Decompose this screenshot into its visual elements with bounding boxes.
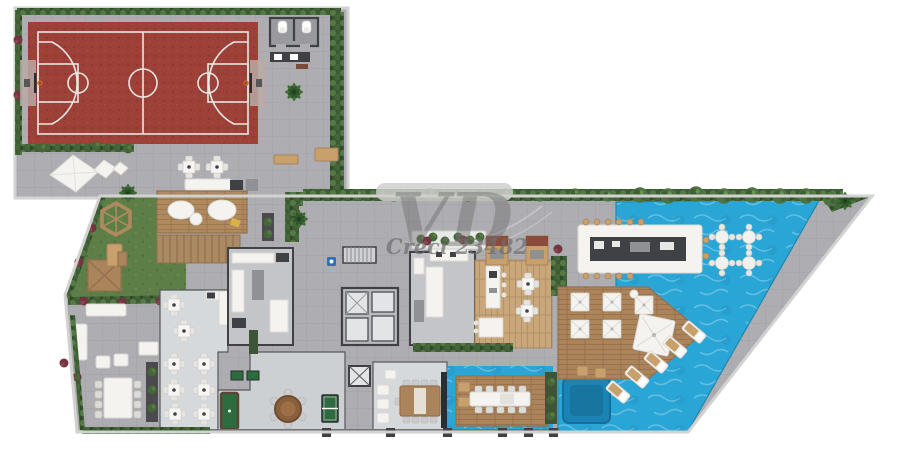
hedge-strip [413,343,513,352]
hedge-top-strip [17,8,341,15]
watermark: VD Creci 23482 [376,178,528,264]
bean-bag [208,200,236,220]
toilet-icon [278,21,287,33]
island-deck [447,366,557,432]
flower-bush [14,36,23,45]
deck-lounger [458,382,470,392]
armchair [377,413,389,423]
sports-terrace-block [14,8,349,198]
service-elevator [349,366,370,386]
hedge-right-strip [330,12,344,194]
kitchen-island [252,270,264,300]
appliance [232,318,246,328]
floorplan-svg: VD Creci 23482 [0,0,900,450]
floorplan-render: VD Creci 23482 [0,0,900,450]
bush [38,144,47,153]
side-table [630,290,638,298]
kitchen-counter [232,253,274,263]
basketball-court [20,22,266,144]
buffet-counter [185,179,258,191]
outdoor-sofa [86,304,126,316]
foosball-table [231,371,243,380]
appliance [276,253,289,262]
bean-bag [190,213,202,225]
foosball-table [247,371,259,380]
watermark-license: Creci 23482 [386,234,528,259]
palm-tree [290,210,308,228]
bbq-station [526,236,548,265]
ottoman [114,354,128,366]
long-dining-table [104,378,132,418]
palm-tree [285,83,303,101]
palm-tree [119,184,137,202]
kitchen-counter [232,270,244,312]
bench [296,64,308,69]
toilet-icon [302,21,311,33]
kitchen-block [228,248,293,345]
ottoman [595,368,606,378]
bar-counter [479,318,503,337]
deck-umbrella-table [571,320,589,338]
ping-pong-table [322,395,338,422]
bush [124,145,133,154]
counter [426,267,443,317]
counter [414,300,424,322]
armchair [385,370,396,379]
deck-umbrella-table [603,293,621,311]
deck-umbrella-table [635,296,653,314]
wood-bench [274,155,298,164]
large-canopy-umbrella [633,314,676,357]
swim-up-bar [578,219,709,279]
ottoman [96,356,110,368]
armchair [377,385,389,395]
wood-bench [315,148,338,161]
kitchen-counter [270,300,288,332]
bush [92,142,101,151]
dining-table [395,380,445,423]
hot-tub [563,378,610,423]
elevator-bank [342,288,398,345]
planter-box [249,330,258,354]
deck-umbrella-table [603,320,621,338]
ottoman [577,366,588,376]
tv-wall [441,372,447,428]
flower-bush [554,245,563,254]
deck-lounger [458,397,470,407]
armchair [377,399,389,409]
billiards-table [221,393,238,429]
cooktop [489,271,497,278]
deck-umbrella-table [571,293,589,311]
side-table [139,342,158,355]
island-long-table [470,386,530,413]
staircase [343,247,376,263]
tv-dining-lounge [373,362,447,430]
planter-hedge [285,192,303,206]
